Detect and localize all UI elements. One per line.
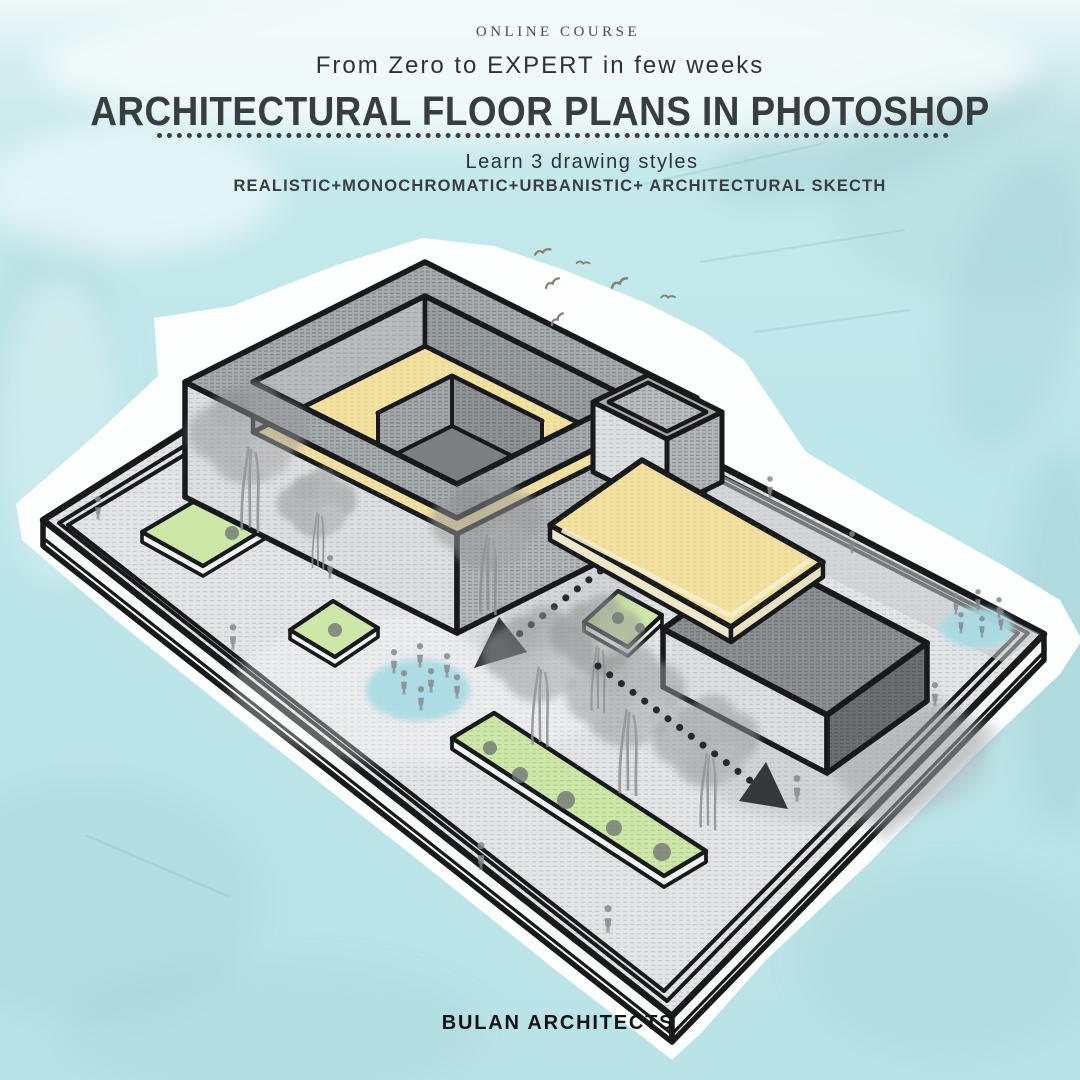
bird-icon	[577, 261, 590, 265]
bird-icon	[661, 295, 675, 299]
drawing-styles-line: REALISTIC+MONOCHROMATIC+URBANISTIC+ ARCH…	[233, 177, 886, 196]
eyebrow-label: ONLINE COURSE	[476, 24, 640, 41]
dotted-divider	[157, 133, 949, 138]
plaza-ellipse	[366, 659, 470, 721]
bird-icon	[535, 249, 551, 255]
poster-subtitle: From Zero to EXPERT in few weeks	[316, 52, 765, 80]
course-poster: ONLINE COURSE From Zero to EXPERT in few…	[0, 0, 1080, 1080]
poster-title: ARCHITECTURAL FLOOR PLANS IN PHOTOSHOP	[90, 88, 989, 135]
poster-tagline: Learn 3 drawing styles	[465, 151, 698, 174]
brand-name: BULAN ARCHITECTS	[442, 1012, 675, 1035]
bird-icon	[611, 278, 628, 288]
